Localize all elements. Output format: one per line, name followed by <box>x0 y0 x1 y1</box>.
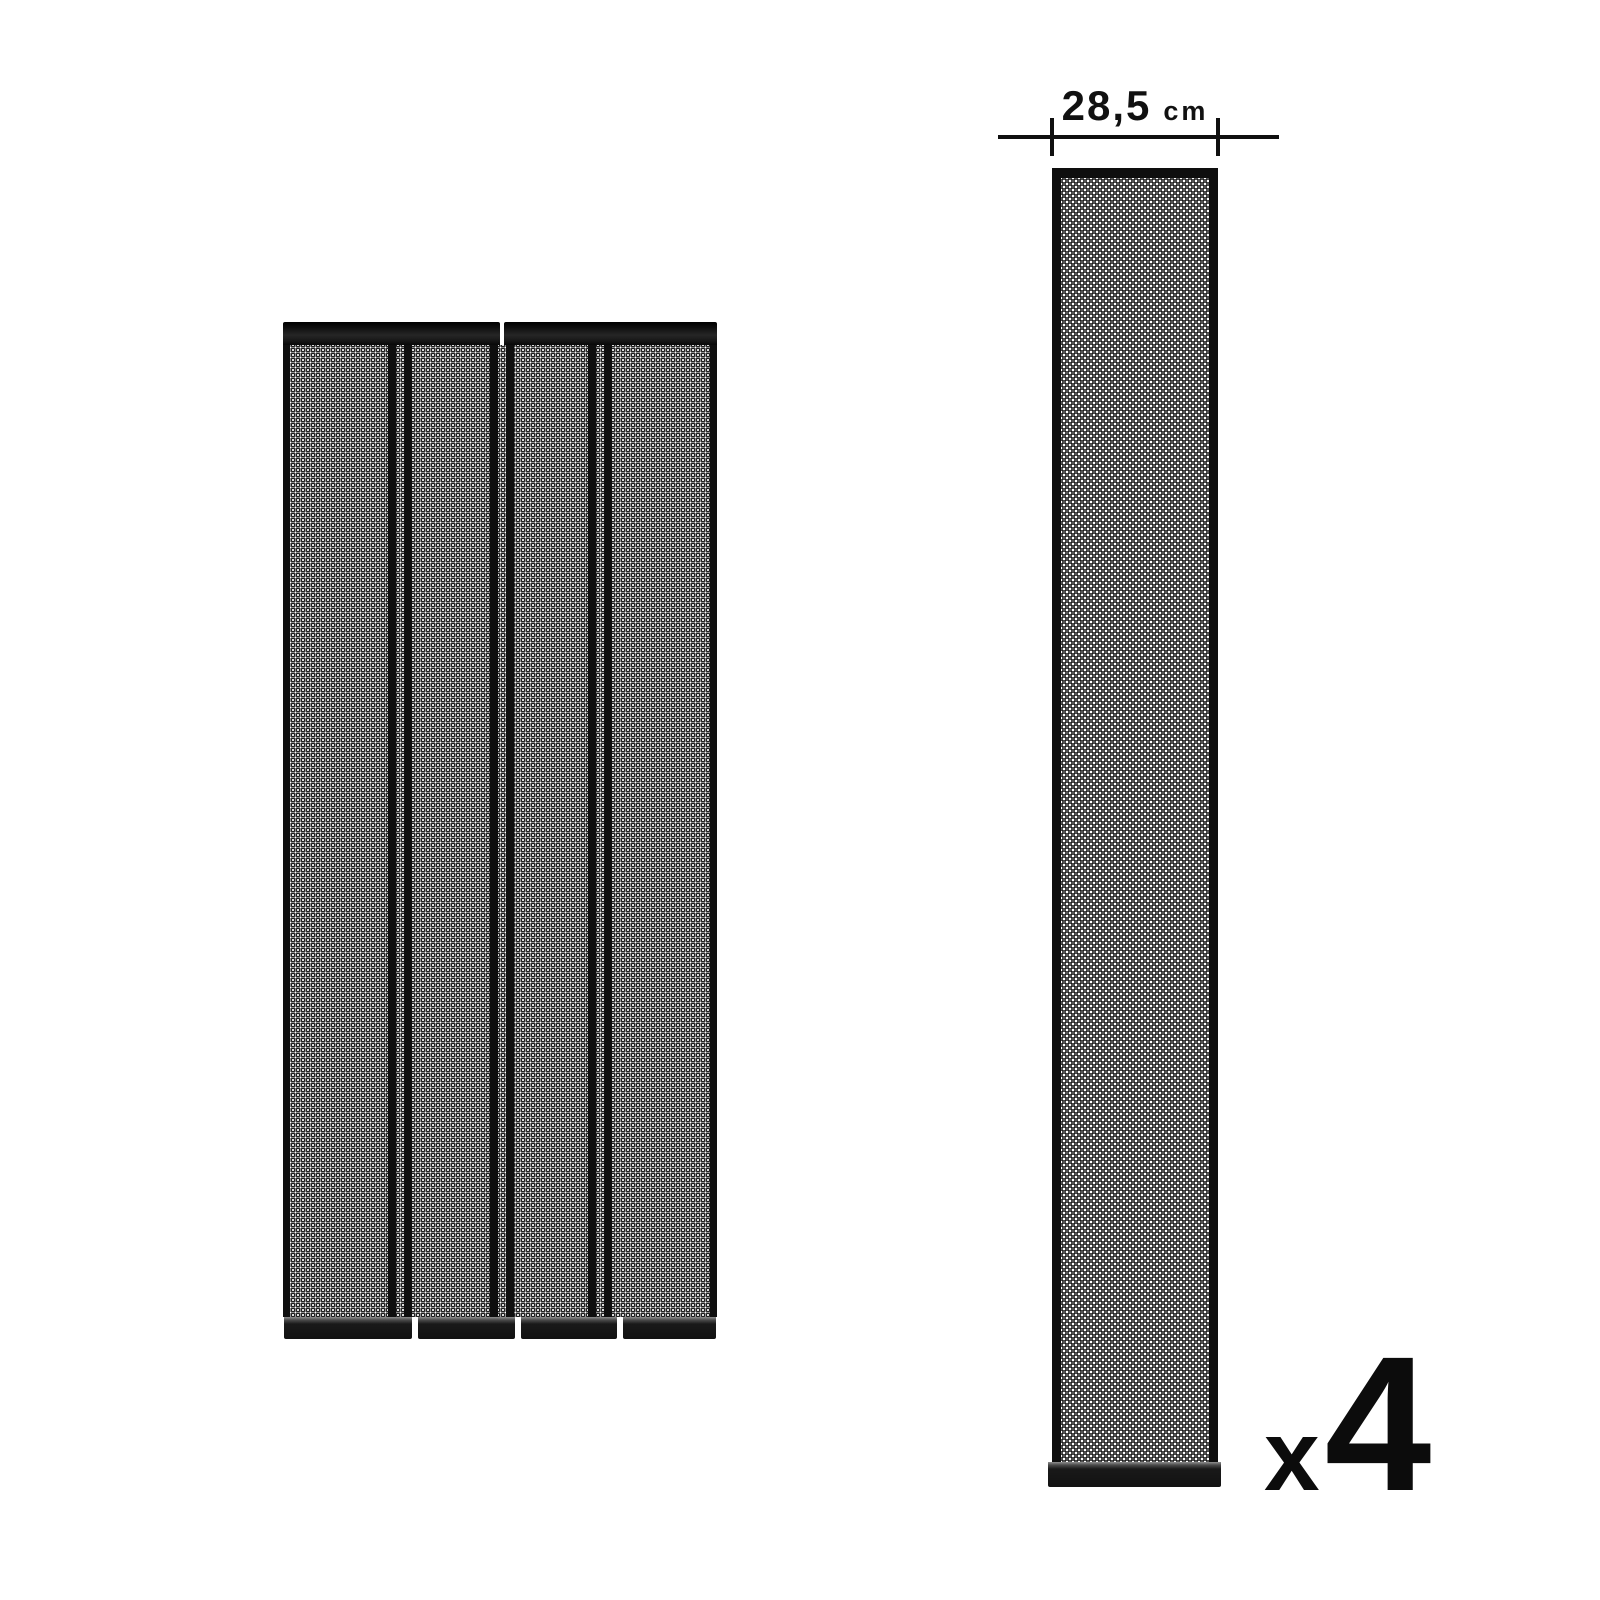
curtain-top-rail-left <box>283 322 500 345</box>
product-image-canvas: 28,5cm x4 <box>0 0 1600 1600</box>
curtain-strip-divider <box>490 345 514 1317</box>
curtain-bottom-bar <box>418 1317 515 1339</box>
dimension-label: 28,5cm <box>1062 85 1209 127</box>
dimension-line <box>998 135 1279 139</box>
curtain-strip-divider <box>588 345 612 1317</box>
dimension-tick-right-icon <box>1216 118 1220 156</box>
dimension-tick-left-icon <box>1050 118 1054 156</box>
curtain-bottom-bar <box>284 1317 412 1339</box>
quantity-label: x4 <box>1264 1313 1431 1534</box>
curtain-assembly <box>283 322 717 1340</box>
curtain-bottom-bar <box>623 1317 716 1339</box>
strip-bottom-bar <box>1048 1462 1221 1487</box>
curtain-edge-right <box>710 345 717 1317</box>
dimension-value: 28,5 <box>1062 82 1152 129</box>
quantity-count: 4 <box>1325 1316 1432 1531</box>
dimension-unit: cm <box>1163 96 1208 126</box>
curtain-edge-left <box>283 345 290 1317</box>
curtain-strip-divider <box>388 345 412 1317</box>
curtain-bottom-bar <box>521 1317 617 1339</box>
curtain-mesh-body <box>283 345 717 1317</box>
single-strip <box>1052 168 1218 1462</box>
quantity-times-symbol: x <box>1264 1400 1320 1512</box>
curtain-top-rail-right <box>504 322 717 345</box>
